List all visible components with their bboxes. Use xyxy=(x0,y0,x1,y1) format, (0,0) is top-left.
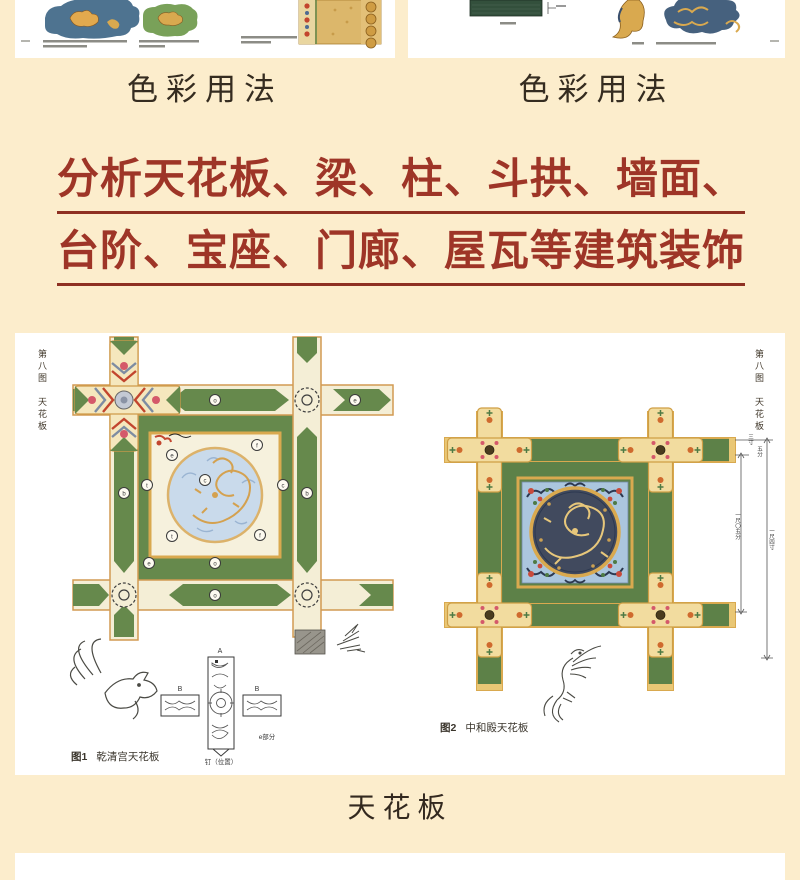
figure-1-number: 图1 xyxy=(71,751,87,763)
svg-text:三寸: 三寸 xyxy=(747,434,754,446)
figure-1-ceiling-diagram: o f e t c c b b t f o e o e xyxy=(57,333,412,765)
micro-caption-lines xyxy=(21,36,297,48)
svg-text:e部分: e部分 xyxy=(259,732,276,741)
section-title: 天花板 xyxy=(0,786,800,826)
rosette-top-right xyxy=(295,388,319,412)
top-right-caption: 色彩用法 xyxy=(408,64,785,109)
svg-text:A: A xyxy=(218,648,223,655)
svg-text:五分: 五分 xyxy=(756,446,763,459)
headline: 分析天花板、梁、柱、斗拱、墙面、 台阶、宝座、门廊、屋瓦等建筑装饰 xyxy=(57,155,749,299)
svg-text:一尺四寸: 一尺四寸 xyxy=(768,528,775,550)
figure-2-title: 中和殿天花板 xyxy=(465,722,528,734)
cross-section-detail: A B B e部分 钉（位置） xyxy=(161,648,281,766)
headline-line-2: 台阶、宝座、门廊、屋瓦等建筑装饰 xyxy=(57,227,745,286)
svg-text:c: c xyxy=(204,479,207,485)
rosette-bottom-left xyxy=(112,583,136,607)
top-right-book-page xyxy=(408,0,785,58)
product-detail-page: 色彩用法 色彩用法 分析天花板、梁、柱、斗拱、墙面、 台阶、宝座、门廊、屋瓦等建… xyxy=(0,0,800,880)
top-left-book-page xyxy=(15,0,395,58)
green-board-diagram xyxy=(470,0,566,25)
blue-cloud-fragment xyxy=(45,0,139,39)
next-book-spread-cropped xyxy=(15,853,785,880)
svg-text:B: B xyxy=(255,686,260,693)
figure-1-caption: 图1乾清宫天花板 xyxy=(71,749,159,764)
svg-text:钉（位置）: 钉（位置） xyxy=(205,757,238,766)
hatch-sketch xyxy=(337,624,365,652)
top-left-page-illustration xyxy=(15,0,395,58)
dragon-medallion-right xyxy=(502,462,648,603)
main-book-spread: 第八图 天花板 第八图 天花板 xyxy=(15,333,785,775)
headline-line-1: 分析天花板、梁、柱、斗拱、墙面、 xyxy=(57,155,745,214)
figure-1-title: 乾清宫天花板 xyxy=(96,751,159,763)
gold-flame-ornament xyxy=(613,0,644,38)
gold-column-fragment xyxy=(299,0,381,48)
top-right-page-illustration xyxy=(408,0,785,58)
svg-text:一尺〇五分: 一尺〇五分 xyxy=(734,512,741,541)
svg-text:B: B xyxy=(178,686,183,693)
green-cloud-fragment xyxy=(143,4,198,37)
margin-label-left: 第八图 天花板 xyxy=(36,349,49,433)
gray-section-block xyxy=(295,630,325,654)
figure-2-number: 图2 xyxy=(440,722,456,734)
top-left-caption: 色彩用法 xyxy=(15,64,395,109)
phoenix-sketch xyxy=(544,646,601,722)
blue-gold-cloud-ornament xyxy=(664,0,739,34)
micro-caption-lines xyxy=(632,40,779,45)
svg-text:c: c xyxy=(282,484,285,490)
dragon-head-sketch xyxy=(70,639,157,719)
rosette-bottom-right xyxy=(295,583,319,607)
figure-2-caption: 图2中和殿天花板 xyxy=(440,720,528,735)
figure-2-ceiling-diagram: 三寸 五分 一尺〇五分 一尺四寸 xyxy=(423,400,783,735)
